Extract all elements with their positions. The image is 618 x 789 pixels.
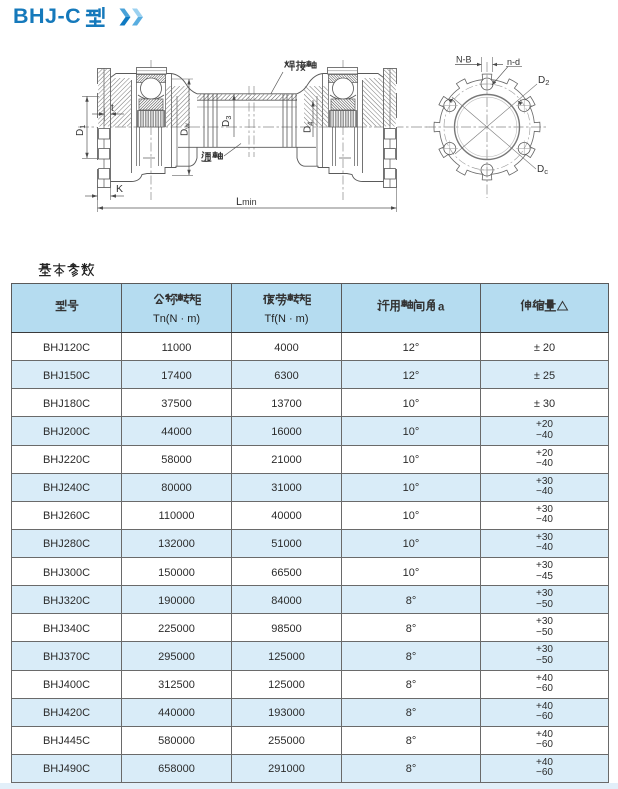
svg-text:D3: D3 [221, 116, 233, 127]
svg-text:Dc: Dc [537, 164, 548, 176]
svg-text:n-d: n-d [507, 57, 520, 67]
svg-text:a: a [438, 302, 445, 314]
svg-text:Dw: Dw [180, 123, 192, 136]
svg-text:N-B: N-B [456, 55, 472, 65]
svg-text:t: t [111, 103, 114, 114]
svg-text:D1: D1 [75, 125, 87, 136]
svg-text:D4: D4 [303, 122, 315, 133]
svg-text:D2: D2 [538, 75, 549, 87]
svg-text:K: K [116, 183, 123, 195]
svg-text:Lmin: Lmin [236, 196, 257, 208]
